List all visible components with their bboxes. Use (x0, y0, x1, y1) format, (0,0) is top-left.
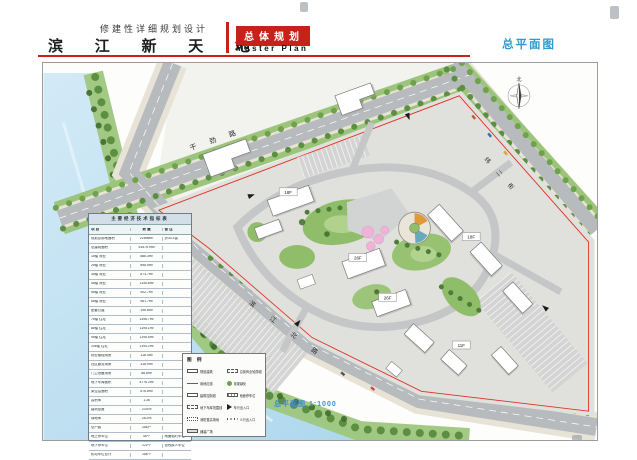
table-row: 架空层面积 676.8m² (89, 388, 191, 397)
project-type-label: 修建性详细规划设计 (100, 22, 208, 35)
table-row: 绿地率 28.3% (89, 415, 191, 424)
row-item-name: 9#楼 住宅 (89, 336, 130, 339)
legend-symbol-icon (187, 393, 198, 398)
header-rule (38, 55, 470, 57)
row-item-name: 2#楼 商业 (89, 264, 130, 267)
round-garden (399, 212, 431, 244)
row-item-name: 10#楼 住宅 (89, 345, 130, 348)
legend-symbol-icon (227, 369, 238, 374)
building-label: 26F (384, 295, 392, 300)
row-item-name: 架空层面积 (89, 390, 130, 393)
col-header-note: 备 注 (163, 228, 191, 232)
indicators-table-body: 规划总用地面积 22896m² 折34.3亩 总建筑面积 51575.9m² 1… (89, 235, 191, 460)
row-item-name: 机动车位合计 (89, 453, 130, 456)
legend-title: 图 例 (187, 357, 263, 363)
row-item-name: 配套公建 (89, 309, 130, 312)
row-item-value: 676.8m² (130, 390, 164, 393)
legend-item-label: 规划建筑 (200, 369, 213, 374)
row-item-value: 46个 (130, 435, 164, 438)
legend-symbol-icon (187, 383, 198, 384)
legend-symbol-icon (227, 418, 238, 420)
legend-item: 沿街商业轮廓线 (227, 365, 264, 377)
table-row: 地上停车位 46个 地面临时车位 (89, 433, 191, 442)
row-item-value: 873.7m² (130, 273, 164, 276)
row-item-value: 220个 (130, 444, 164, 447)
row-item-value: 51575.9m² (130, 246, 164, 249)
legend-item: 地面停车位 (227, 389, 264, 401)
row-item-value: 1196.7m² (130, 318, 164, 321)
legend-item-label: 车行出入口 (234, 405, 250, 410)
building-label: 18F (284, 190, 292, 195)
legend-item-label: 人行出入口 (240, 417, 256, 422)
legend-item: 规划建筑 (187, 365, 224, 377)
table-row: 总建筑面积 51575.9m² (89, 244, 191, 253)
row-item-name: 7#楼 住宅 (89, 318, 130, 321)
row-item-value: 266个 (130, 453, 164, 456)
table-row: 地下车库面积 4776.2m² (89, 379, 191, 388)
row-item-value: 902.7m² (130, 291, 164, 294)
table-row: 地下停车位 220个 含残疾人车位 (89, 442, 191, 451)
row-item-name: 门卫设备用房 (89, 372, 130, 375)
building-label: 18F (467, 235, 475, 240)
row-item-value: 23.6% (130, 408, 164, 411)
legend-item: 铺装广场 (187, 425, 224, 437)
table-row: 3#楼 商业 873.7m² (89, 271, 191, 280)
legend-item: 景观绿化 (227, 377, 264, 389)
table-row: 机动车位合计 266个 (89, 451, 191, 460)
row-item-value: 196.8m² (130, 309, 164, 312)
legend-item-label: 消防登高场地 (200, 417, 219, 422)
row-item-name: 5#楼 商业 (89, 291, 130, 294)
table-row: 7#楼 住宅 1196.7m² (89, 316, 191, 325)
row-item-note: 含残疾人车位 (163, 444, 191, 447)
col-header-value: 数 量 (130, 228, 164, 232)
row-item-value: 22896m² (130, 237, 164, 240)
row-item-value: 898.5m² (130, 264, 164, 267)
row-item-value: 86.8m² (130, 372, 164, 375)
scan-artifact (572, 435, 582, 441)
row-item-name: 8#楼 住宅 (89, 327, 130, 330)
row-item-name: 容积率 (89, 399, 130, 402)
legend-left-column: 规划建筑 用地红线 建筑控制线 地下车库范围线 消防登高场地 铺装广场 (187, 365, 224, 437)
table-row: 物业管理用房 118.4m² (89, 352, 191, 361)
table-row: 2#楼 商业 898.5m² (89, 262, 191, 271)
legend-right-column: 沿街商业轮廓线 景观绿化 地面停车位 车行出入口 人行出入口 (227, 365, 264, 437)
row-item-name: 总建筑面积 (89, 246, 130, 249)
table-row: 容积率 1.36 (89, 397, 191, 406)
badge-master-plan-en: Master Plan (236, 44, 308, 53)
row-item-value: 1.36 (130, 399, 164, 402)
table-row: 总户数 266户 (89, 424, 191, 433)
table-row: 4#楼 商业 1145.8m² (89, 280, 191, 289)
legend-item: 消防登高场地 (187, 413, 224, 425)
legend-item-label: 铺装广场 (200, 429, 213, 434)
legend-symbol-icon (227, 381, 232, 386)
table-row: 9#楼 住宅 1195.5m² (89, 334, 191, 343)
indicators-table: 主要经济技术指标表 项 目 数 量 备 注 规划总用地面积 22896m² 折3… (88, 213, 192, 441)
row-item-name: 社区服务用房 (89, 363, 130, 366)
scan-artifact (610, 6, 619, 19)
row-item-value: 4776.2m² (130, 381, 164, 384)
legend-symbol-icon (187, 417, 198, 422)
row-item-value: 28.3% (130, 417, 164, 420)
project-title: 滨 江 新 天 地 (48, 35, 264, 56)
row-item-name: 规划总用地面积 (89, 237, 130, 240)
row-item-name: 物业管理用房 (89, 354, 130, 357)
table-row: 5#楼 商业 902.7m² (89, 289, 191, 298)
legend-item: 用地红线 (187, 377, 224, 389)
indicators-table-title: 主要经济技术指标表 (89, 214, 191, 225)
row-item-value: 961.7m² (130, 300, 164, 303)
legend-symbol-icon (187, 369, 198, 374)
legend-item: 地下车库范围线 (187, 401, 224, 413)
legend-symbol-icon (187, 405, 198, 410)
row-item-name: 绿地率 (89, 417, 130, 420)
legend-item-label: 用地红线 (200, 381, 213, 386)
table-row: 社区服务用房 318.9m² (89, 361, 191, 370)
row-item-note: 折34.3亩 (163, 237, 191, 240)
scan-artifact (300, 2, 308, 12)
row-item-name: 4#楼 商业 (89, 282, 130, 285)
legend-item-label: 地面停车位 (240, 393, 256, 398)
row-item-value: 1194.2m² (130, 345, 164, 348)
row-item-value: 1195.5m² (130, 336, 164, 339)
legend-item-label: 建筑控制线 (200, 393, 216, 398)
legend-symbol-icon (227, 404, 232, 410)
row-item-name: 地上停车位 (89, 435, 130, 438)
scale-caption: 总平面图 1:1000 (274, 399, 337, 409)
row-item-name: 1#楼 商业 (89, 255, 130, 258)
plan-sheet: 修建性详细规划设计 滨 江 新 天 地 总体规划 Master Plan 总平面… (0, 0, 637, 460)
row-item-value: 318.9m² (130, 363, 164, 366)
col-header-item: 项 目 (89, 228, 130, 232)
header-divider (226, 22, 229, 53)
row-item-name: 地下车库面积 (89, 381, 130, 384)
row-item-value: 1145.8m² (130, 282, 164, 285)
table-row: 8#楼 住宅 1195.1m² (89, 325, 191, 334)
legend-panel: 图 例 规划建筑 用地红线 建筑控制线 地下车库范围线 消防登 (182, 353, 266, 437)
row-item-name: 建筑密度 (89, 408, 130, 411)
legend-symbol-icon (227, 393, 238, 398)
badge-master-plan: 总体规划 (236, 26, 310, 46)
row-item-value: 266户 (130, 426, 164, 429)
building-label: 26F (354, 256, 362, 261)
compass-north-label: 北 (516, 76, 521, 83)
table-row: 门卫设备用房 86.8m² (89, 370, 191, 379)
legend-symbol-icon (187, 429, 198, 434)
sheet-title: 总平面图 (502, 36, 556, 52)
table-row: 规划总用地面积 22896m² 折34.3亩 (89, 235, 191, 244)
legend-item: 建筑控制线 (187, 389, 224, 401)
legend-item-label: 景观绿化 (234, 381, 247, 386)
row-item-name: 总户数 (89, 426, 130, 429)
indicators-table-header: 项 目 数 量 备 注 (89, 225, 191, 235)
legend-item: 人行出入口 (227, 413, 264, 425)
table-row: 建筑密度 23.6% (89, 406, 191, 415)
legend-item: 车行出入口 (227, 401, 264, 413)
table-row: 配套公建 196.8m² (89, 307, 191, 316)
building-label: 11F (458, 343, 466, 348)
row-item-value: 888.3m² (130, 255, 164, 258)
row-item-value: 118.4m² (130, 354, 164, 357)
row-item-value: 1195.1m² (130, 327, 164, 330)
row-item-name: 3#楼 商业 (89, 273, 130, 276)
table-row: 1#楼 商业 888.3m² (89, 253, 191, 262)
legend-item-label: 地下车库范围线 (200, 405, 222, 410)
table-row: 6#楼 商业 961.7m² (89, 298, 191, 307)
row-item-name: 6#楼 商业 (89, 300, 130, 303)
row-item-name: 地下停车位 (89, 444, 130, 447)
legend-item-label: 沿街商业轮廓线 (240, 369, 262, 374)
table-row: 10#楼 住宅 1194.2m² (89, 343, 191, 352)
